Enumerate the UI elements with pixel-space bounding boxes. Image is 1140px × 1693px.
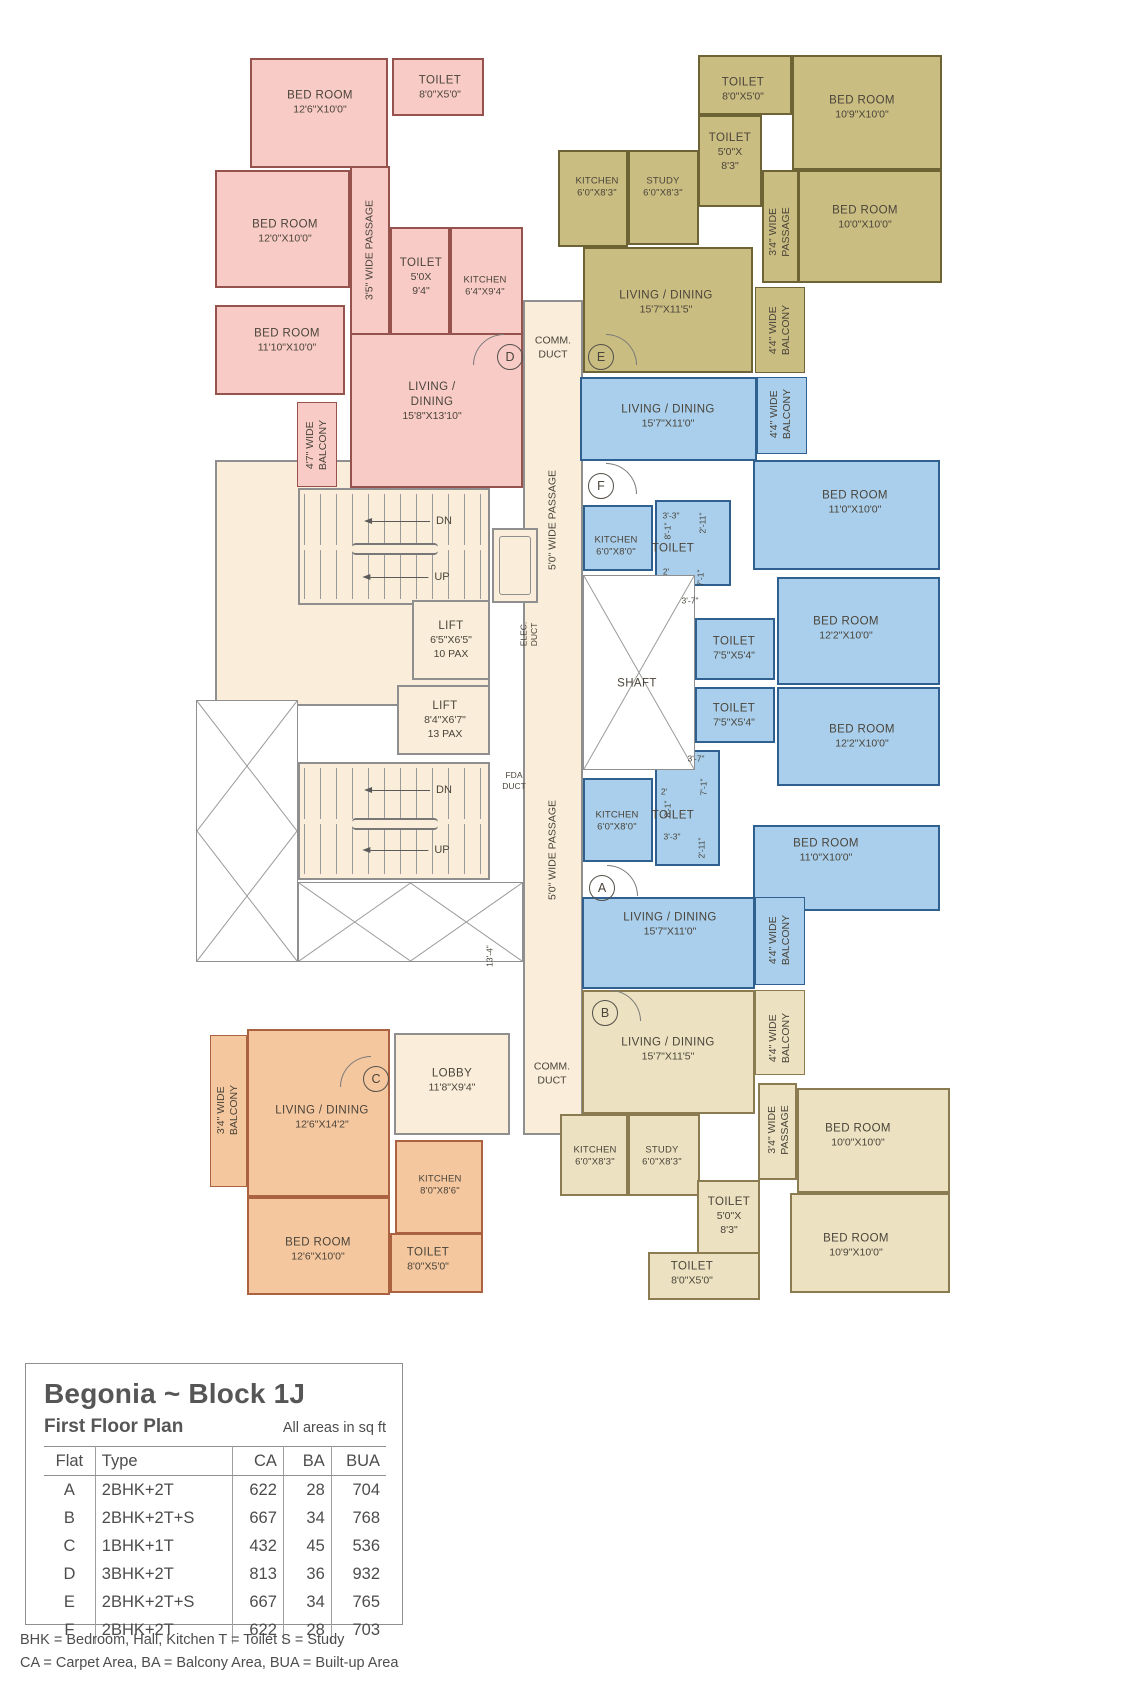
label-b-passage: 3'4" WIDE PASSAGE	[766, 1105, 792, 1154]
arrow-line	[370, 850, 428, 851]
label-f-kitchen: KITCHEN 6'0"X8'0"	[594, 535, 637, 560]
label-a-toilet-d3: 2'-11"	[697, 837, 708, 858]
label-comm-duct-bottom: COMM. DUCT	[534, 1060, 570, 1087]
stair-dn-text: DN	[436, 784, 452, 796]
lift-car	[492, 528, 538, 603]
label-dim-13-4: 13'-4"	[485, 945, 496, 967]
label-e-toilet2: TOILET 5'0"X 8'3"	[709, 131, 751, 173]
table-header-row: Flat Type CA BA BUA	[44, 1447, 386, 1476]
label-c-bedroom: BED ROOM 12'6"X10'0"	[285, 1236, 351, 1265]
table-row: D 3BHK+2T 813 36 932	[44, 1560, 386, 1588]
col-header-bua: BUA	[331, 1447, 386, 1476]
cell-bua: 704	[331, 1476, 386, 1505]
arrow-line	[372, 521, 430, 522]
label-stair1-up: UP	[362, 571, 449, 583]
label-f-toilet-d1: 3'-3"	[663, 510, 680, 521]
flat-label-f: F	[588, 473, 614, 499]
label-e-bedroom1: BED ROOM 10'9"X10'0"	[829, 94, 895, 123]
lift-car-inner	[499, 536, 531, 595]
label-stair2-up: UP	[362, 844, 449, 856]
label-a-bedroom1: BED ROOM 12'2"X10'0"	[829, 723, 895, 752]
flat-letter: E	[597, 350, 605, 364]
cell-ba: 34	[283, 1504, 331, 1532]
cell-ca: 622	[232, 1476, 283, 1505]
label-lift1: LIFT 6'5"X6'5" 10 PAX	[430, 619, 472, 661]
label-a-toilet-d5: 7'-1"	[699, 779, 710, 796]
cell-flat: D	[44, 1560, 95, 1588]
arrow-left-icon	[364, 787, 372, 793]
stair-up-text: UP	[434, 844, 449, 856]
stair-up-text: UP	[434, 571, 449, 583]
label-b-kitchen: KITCHEN 6'0"X8'3"	[573, 1145, 616, 1170]
cell-ba: 45	[283, 1532, 331, 1560]
flat-label-a: A	[589, 875, 615, 901]
cell-bua: 765	[331, 1588, 386, 1616]
label-f-balcony: 4'4" WIDE BALCONY	[768, 389, 794, 439]
flat-label-b: B	[592, 1000, 618, 1026]
label-e-toilet1: TOILET 8'0"X5'0"	[722, 76, 764, 105]
flat-letter: F	[597, 479, 605, 493]
label-e-balcony: 4'4" WIDE BALCONY	[767, 305, 793, 355]
label-a-toilet-d4: 2'	[661, 786, 667, 797]
label-b-bedroom1: BED ROOM 10'0"X10'0"	[825, 1122, 891, 1151]
shaft-area	[583, 575, 695, 770]
label-b-toilet1: TOILET 5'0"X 8'3"	[708, 1195, 750, 1237]
cell-ca: 667	[232, 1504, 283, 1532]
flat-label-d: D	[497, 344, 523, 370]
cell-type: 2BHK+2T+S	[95, 1504, 232, 1532]
legend-title: Begonia ~ Block 1J	[44, 1378, 386, 1410]
label-f-toilet-d5: 7'-1"	[696, 570, 707, 587]
stair-landing	[352, 818, 438, 830]
label-e-study: STUDY 6'0"X8'3"	[643, 176, 683, 201]
label-fda-duct: FDA DUCT	[502, 770, 526, 792]
flat-label-e: E	[588, 344, 614, 370]
footnote-abbreviations: BHK = Bedroom, Hall, Kitchen T = Toilet …	[20, 1632, 344, 1648]
label-shaft: SHAFT	[617, 677, 657, 692]
table-row: E 2BHK+2T+S 667 34 765	[44, 1588, 386, 1616]
cell-type: 2BHK+2T+S	[95, 1588, 232, 1616]
label-d-kitchen: KITCHEN 6'4"X9'4"	[463, 275, 506, 300]
table-row: A 2BHK+2T 622 28 704	[44, 1476, 386, 1505]
cell-ba: 34	[283, 1588, 331, 1616]
central-passage	[523, 300, 583, 1135]
label-lift2: LIFT 8'4"X6'7" 13 PAX	[424, 699, 466, 741]
label-e-living: LIVING / DINING 15'7"X11'5"	[619, 289, 713, 318]
cell-bua: 768	[331, 1504, 386, 1532]
label-passage5-bottom: 5'0" WIDE PASSAGE	[546, 800, 559, 900]
label-elec-duct: ELEC. DUCT	[518, 622, 539, 647]
label-passage5-top: 5'0" WIDE PASSAGE	[546, 470, 559, 570]
label-c-kitchen: KITCHEN 8'0"X8'6"	[418, 1174, 461, 1199]
cell-flat: B	[44, 1504, 95, 1532]
cross-bracing	[197, 701, 297, 961]
label-c-balcony: 3'4" WIDE BALCONY	[215, 1085, 241, 1135]
flat-letter: B	[601, 1006, 609, 1020]
legend-note: All areas in sq ft	[283, 1420, 386, 1436]
cell-flat: C	[44, 1532, 95, 1560]
cell-type: 2BHK+2T	[95, 1476, 232, 1505]
label-comm-duct-top: COMM. DUCT	[535, 334, 571, 361]
arrow-left-icon	[362, 847, 370, 853]
cell-ba: 36	[283, 1560, 331, 1588]
label-f-toilet-d3: 2'-11"	[698, 512, 709, 533]
label-f-toilet: TOILET	[652, 542, 694, 557]
cell-bua: 932	[331, 1560, 386, 1588]
legend-subtitle: First Floor Plan	[44, 1416, 183, 1438]
label-a-balcony: 4'4" WIDE BALCONY	[767, 915, 793, 965]
label-stair2-dn: DN	[364, 784, 452, 796]
label-b-living: LIVING / DINING 15'7"X11'5"	[621, 1036, 715, 1065]
label-e-kitchen: KITCHEN 6'0"X8'3"	[575, 176, 618, 201]
col-header-type: Type	[95, 1447, 232, 1476]
label-b-balcony: 4'4" WIDE BALCONY	[767, 1013, 793, 1063]
label-f-living: LIVING / DINING 15'7"X11'0"	[621, 403, 715, 432]
label-a-toilet2: TOILET 7'5"X5'4"	[713, 702, 755, 731]
cell-ba: 28	[283, 1476, 331, 1505]
flat-label-c: C	[363, 1066, 389, 1092]
table-row: B 2BHK+2T+S 667 34 768	[44, 1504, 386, 1532]
label-a-toilet-d6: 3'-7"	[688, 753, 705, 764]
flat-letter: C	[371, 1072, 380, 1086]
staircase-lower	[298, 762, 490, 880]
staircase-upper	[298, 488, 490, 605]
label-d-living: LIVING / DINING 15'8"X13'10"	[402, 380, 461, 424]
label-b-toilet2: TOILET 8'0"X5'0"	[671, 1260, 713, 1289]
label-f-toilet-d6: 3'-7"	[682, 595, 699, 606]
cell-flat: A	[44, 1476, 95, 1505]
stair-dn-text: DN	[436, 515, 452, 527]
label-b-bedroom2: BED ROOM 10'9"X10'0"	[823, 1232, 889, 1261]
cell-ca: 667	[232, 1588, 283, 1616]
footnote-areas: CA = Carpet Area, BA = Balcony Area, BUA…	[20, 1655, 398, 1671]
col-header-ca: CA	[232, 1447, 283, 1476]
label-a-kitchen: KITCHEN 6'0"X8'0"	[595, 810, 638, 835]
label-f-toilet2: TOILET 7'5"X5'4"	[713, 635, 755, 664]
label-a-toilet-d1: 3'-3"	[664, 831, 681, 842]
table-row: C 1BHK+1T 432 45 536	[44, 1532, 386, 1560]
legend-panel: Begonia ~ Block 1J First Floor Plan All …	[25, 1363, 403, 1625]
cell-ca: 813	[232, 1560, 283, 1588]
arrow-left-icon	[362, 574, 370, 580]
stair-landing	[352, 543, 438, 555]
label-d-toilet1: TOILET 8'0"X5'0"	[419, 74, 461, 103]
label-f-bedroom2: BED ROOM 12'2"X10'0"	[813, 615, 879, 644]
label-b-study: STUDY 6'0"X8'3"	[642, 1145, 682, 1170]
areas-table: Flat Type CA BA BUA A 2BHK+2T 622 28 704…	[44, 1446, 386, 1644]
label-d-bedroom1: BED ROOM 12'6"X10'0"	[287, 89, 353, 118]
label-d-bedroom2: BED ROOM 12'0"X10'0"	[252, 218, 318, 247]
label-a-bedroom2: BED ROOM 11'0"X10'0"	[793, 837, 859, 866]
col-header-ba: BA	[283, 1447, 331, 1476]
cell-ca: 432	[232, 1532, 283, 1560]
arrow-left-icon	[364, 518, 372, 524]
cell-type: 1BHK+1T	[95, 1532, 232, 1560]
flat-letter: A	[598, 881, 606, 895]
cross-bracing	[584, 576, 694, 769]
arrow-line	[370, 577, 428, 578]
label-stair1-dn: DN	[364, 515, 452, 527]
label-a-living: LIVING / DINING 15'7"X11'0"	[623, 911, 717, 940]
label-f-toilet-d4: 2'	[663, 566, 669, 577]
label-c-toilet: TOILET 8'0"X5'0"	[407, 1246, 449, 1275]
label-d-bedroom3: BED ROOM 11'10"X10'0"	[254, 327, 320, 356]
label-d-balcony: 4'7" WIDE BALCONY	[304, 420, 330, 470]
label-d-passage: 3'5" WIDE PASSAGE	[363, 200, 376, 300]
cell-bua: 536	[331, 1532, 386, 1560]
cell-type: 3BHK+2T	[95, 1560, 232, 1588]
label-e-bedroom2: BED ROOM 10'0"X10'0"	[832, 204, 898, 233]
label-e-passage: 3'4" WIDE PASSAGE	[767, 207, 793, 256]
label-d-toilet2: TOILET 5'0X 9'4"	[400, 256, 442, 298]
label-a-toilet: TOILET	[652, 809, 694, 824]
flat-letter: D	[505, 350, 514, 364]
open-to-below-left	[196, 700, 298, 962]
col-header-flat: Flat	[44, 1447, 95, 1476]
label-lobby: LOBBY 11'8"X9'4"	[429, 1067, 476, 1096]
arrow-line	[372, 790, 430, 791]
cell-flat: E	[44, 1588, 95, 1616]
label-f-bedroom1: BED ROOM 11'0"X10'0"	[822, 489, 888, 518]
label-c-living: LIVING / DINING 12'6"X14'2"	[275, 1104, 369, 1133]
label-f-toilet-d2: 8'-1"	[663, 523, 674, 540]
floor-plan: D E F A B C BED ROOM 12'6"X10'0" TOILET …	[0, 0, 1140, 1693]
